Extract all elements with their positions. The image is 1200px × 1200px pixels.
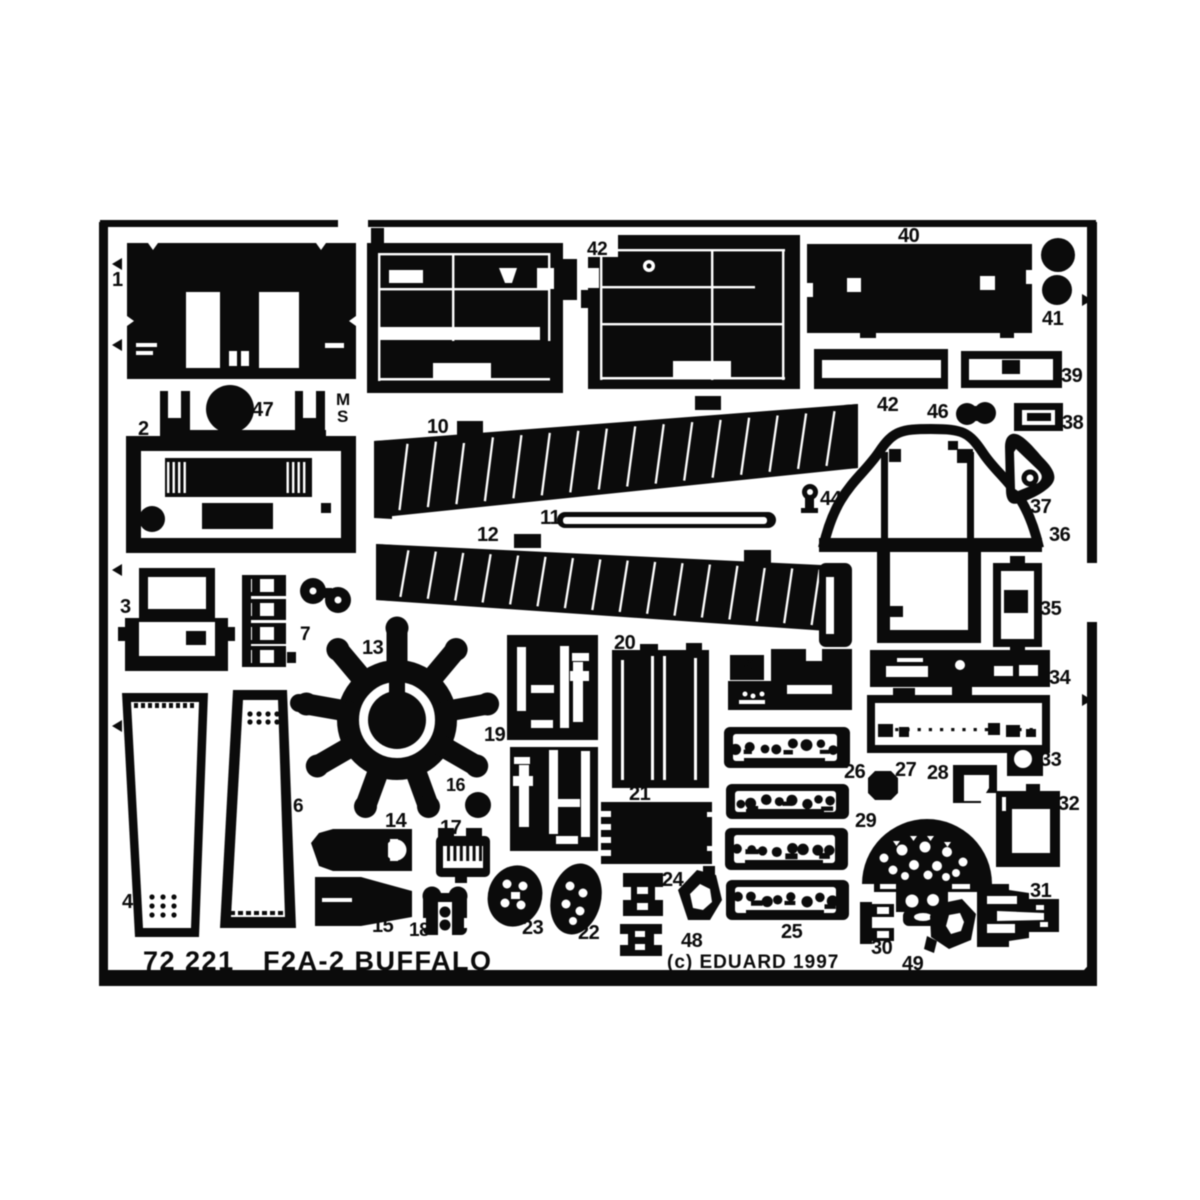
svg-text:30: 30	[871, 937, 893, 959]
svg-text:13: 13	[362, 637, 384, 659]
svg-text:22: 22	[578, 922, 600, 944]
svg-text:41: 41	[1042, 308, 1064, 330]
svg-text:25: 25	[781, 921, 803, 943]
svg-text:46: 46	[927, 401, 949, 423]
svg-text:F2A-2 BUFFALO: F2A-2 BUFFALO	[263, 946, 493, 976]
svg-text:37: 37	[1030, 496, 1052, 518]
svg-text:47: 47	[252, 399, 274, 421]
svg-text:48: 48	[681, 930, 703, 952]
svg-text:42: 42	[587, 239, 607, 260]
svg-text:20: 20	[614, 632, 636, 654]
svg-text:29: 29	[855, 810, 877, 832]
svg-text:3: 3	[120, 596, 131, 618]
svg-text:42: 42	[877, 394, 899, 416]
svg-text:16: 16	[446, 775, 466, 795]
svg-text:27: 27	[895, 759, 917, 781]
svg-text:15: 15	[372, 915, 394, 937]
svg-text:19: 19	[484, 724, 506, 746]
svg-text:(c) EDUARD 1997: (c) EDUARD 1997	[667, 952, 839, 973]
svg-text:31: 31	[1030, 880, 1052, 902]
svg-text:72 221: 72 221	[143, 946, 235, 976]
svg-text:1: 1	[112, 269, 123, 291]
svg-text:38: 38	[1062, 412, 1084, 434]
svg-text:10: 10	[427, 416, 449, 438]
svg-text:32: 32	[1058, 793, 1080, 815]
svg-text:4: 4	[122, 891, 134, 913]
svg-text:S: S	[337, 407, 348, 426]
svg-text:45: 45	[734, 653, 755, 674]
svg-text:35: 35	[1040, 598, 1062, 620]
svg-text:2: 2	[138, 418, 149, 440]
svg-text:39: 39	[1061, 365, 1083, 387]
svg-text:6: 6	[293, 796, 303, 817]
svg-text:17: 17	[440, 817, 462, 839]
svg-text:49: 49	[902, 953, 924, 975]
svg-text:34: 34	[1049, 667, 1072, 689]
svg-text:28: 28	[927, 762, 949, 784]
svg-text:21: 21	[629, 783, 651, 805]
svg-text:36: 36	[1049, 524, 1071, 546]
svg-text:12: 12	[477, 524, 499, 546]
svg-text:11: 11	[540, 507, 561, 529]
svg-text:33: 33	[1040, 749, 1062, 771]
svg-text:23: 23	[522, 917, 544, 939]
svg-text:14: 14	[385, 810, 408, 832]
svg-text:7: 7	[300, 624, 310, 645]
svg-text:40: 40	[898, 225, 920, 247]
svg-text:26: 26	[844, 761, 866, 783]
svg-text:18: 18	[409, 920, 429, 941]
